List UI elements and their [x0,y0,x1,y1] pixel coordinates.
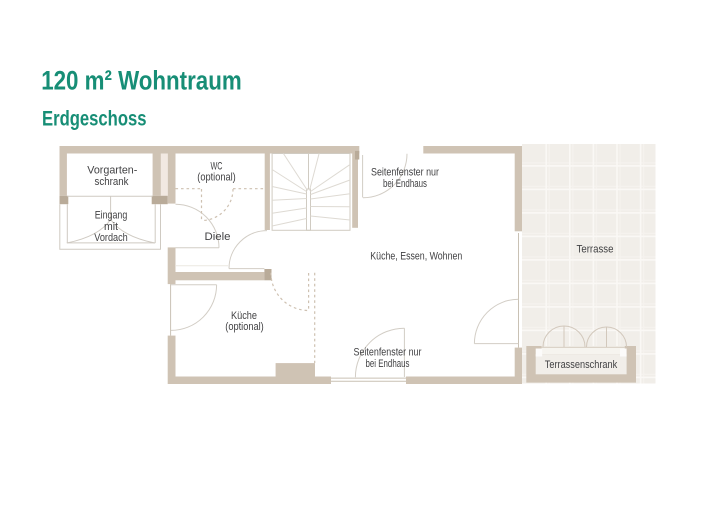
svg-text:(optional): (optional) [197,172,236,184]
svg-text:Seitenfenster nur: Seitenfenster nur [354,347,422,359]
svg-text:Vorgarten-: Vorgarten- [87,165,137,177]
svg-text:Küche: Küche [231,310,257,322]
svg-text:Küche, Essen, Wohnen: Küche, Essen, Wohnen [370,251,462,263]
svg-text:Terrasse: Terrasse [577,243,614,255]
svg-text:Seitenfenster nur: Seitenfenster nur [371,167,439,179]
svg-text:mit: mit [104,221,119,233]
svg-text:(optional): (optional) [225,321,264,333]
svg-text:schrank: schrank [95,176,129,188]
svg-text:120 m² Wohntraum: 120 m² Wohntraum [41,66,242,96]
svg-text:Vordach: Vordach [94,232,128,244]
svg-text:bei Endhaus: bei Endhaus [383,178,427,190]
svg-text:bei Endhaus: bei Endhaus [366,358,410,370]
svg-text:Diele: Diele [205,231,231,243]
svg-text:Eingang: Eingang [95,210,128,222]
svg-text:Erdgeschoss: Erdgeschoss [42,107,147,130]
svg-text:Terrassenschrank: Terrassenschrank [545,359,618,371]
